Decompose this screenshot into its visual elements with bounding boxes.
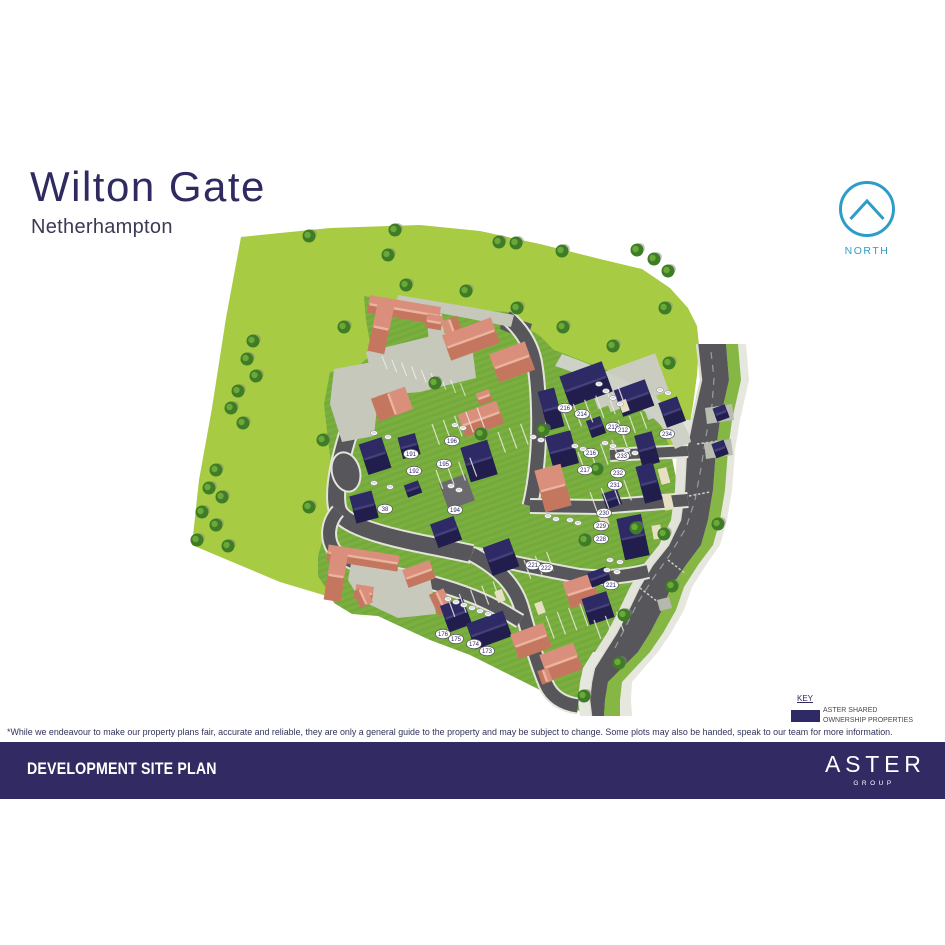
svg-text:216: 216 — [586, 451, 597, 457]
svg-text:174: 174 — [469, 642, 480, 648]
svg-text:222: 222 — [541, 566, 552, 572]
svg-text:221: 221 — [606, 583, 617, 589]
svg-text:214: 214 — [577, 412, 588, 418]
svg-text:229: 229 — [596, 524, 607, 530]
svg-text:230: 230 — [599, 511, 610, 517]
svg-text:217: 217 — [580, 468, 591, 474]
svg-text:232: 232 — [613, 471, 624, 477]
svg-text:194: 194 — [450, 508, 461, 514]
svg-text:212: 212 — [618, 428, 629, 434]
svg-text:195: 195 — [439, 462, 450, 468]
svg-text:231: 231 — [610, 483, 621, 489]
svg-text:38: 38 — [382, 507, 389, 513]
svg-text:196: 196 — [447, 439, 458, 445]
svg-text:173: 173 — [482, 649, 493, 655]
svg-text:221: 221 — [528, 563, 539, 569]
svg-text:192: 192 — [409, 469, 420, 475]
svg-text:234: 234 — [662, 432, 673, 438]
svg-text:191: 191 — [406, 452, 417, 458]
svg-text:233: 233 — [617, 454, 628, 460]
svg-text:175: 175 — [451, 637, 462, 643]
svg-text:176: 176 — [438, 632, 449, 638]
svg-text:216: 216 — [560, 406, 571, 412]
svg-text:228: 228 — [596, 537, 607, 543]
